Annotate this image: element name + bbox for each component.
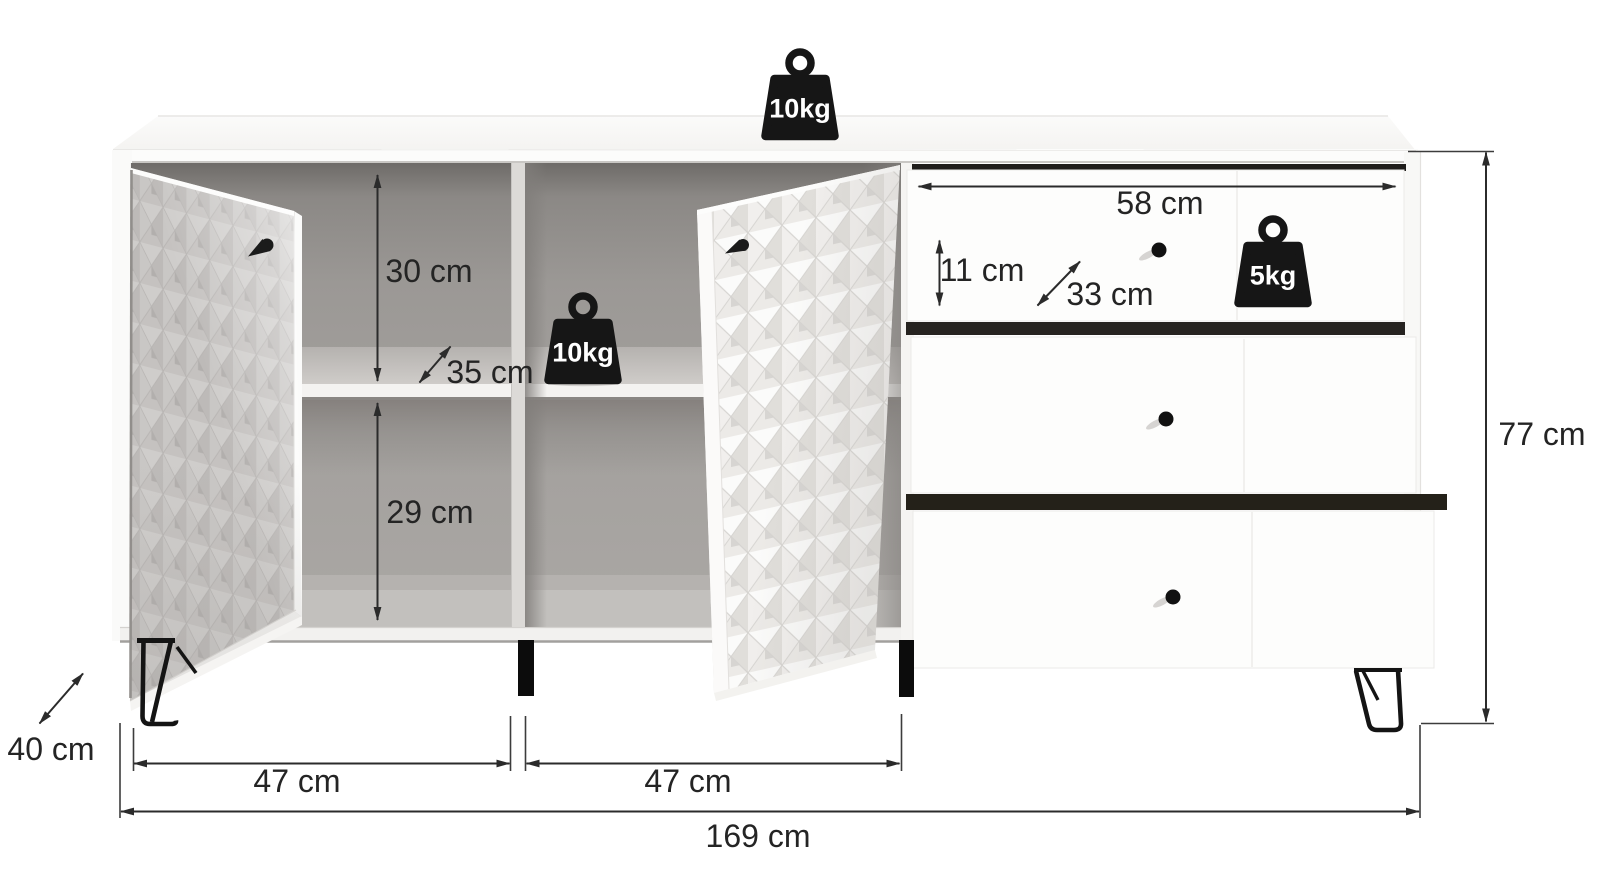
svg-text:10kg: 10kg	[552, 338, 614, 368]
svg-text:10kg: 10kg	[769, 94, 831, 124]
svg-text:5kg: 5kg	[1250, 261, 1297, 291]
svg-text:169 cm: 169 cm	[706, 818, 811, 854]
svg-text:30 cm: 30 cm	[385, 253, 472, 289]
svg-text:40 cm: 40 cm	[7, 731, 94, 767]
svg-text:29 cm: 29 cm	[386, 494, 473, 530]
svg-text:58 cm: 58 cm	[1116, 185, 1203, 221]
svg-text:35 cm: 35 cm	[446, 354, 533, 390]
svg-text:77 cm: 77 cm	[1498, 416, 1585, 452]
svg-text:33 cm: 33 cm	[1066, 276, 1153, 312]
svg-text:47 cm: 47 cm	[644, 763, 731, 799]
svg-text:11 cm: 11 cm	[940, 252, 1025, 288]
svg-text:47 cm: 47 cm	[253, 763, 340, 799]
